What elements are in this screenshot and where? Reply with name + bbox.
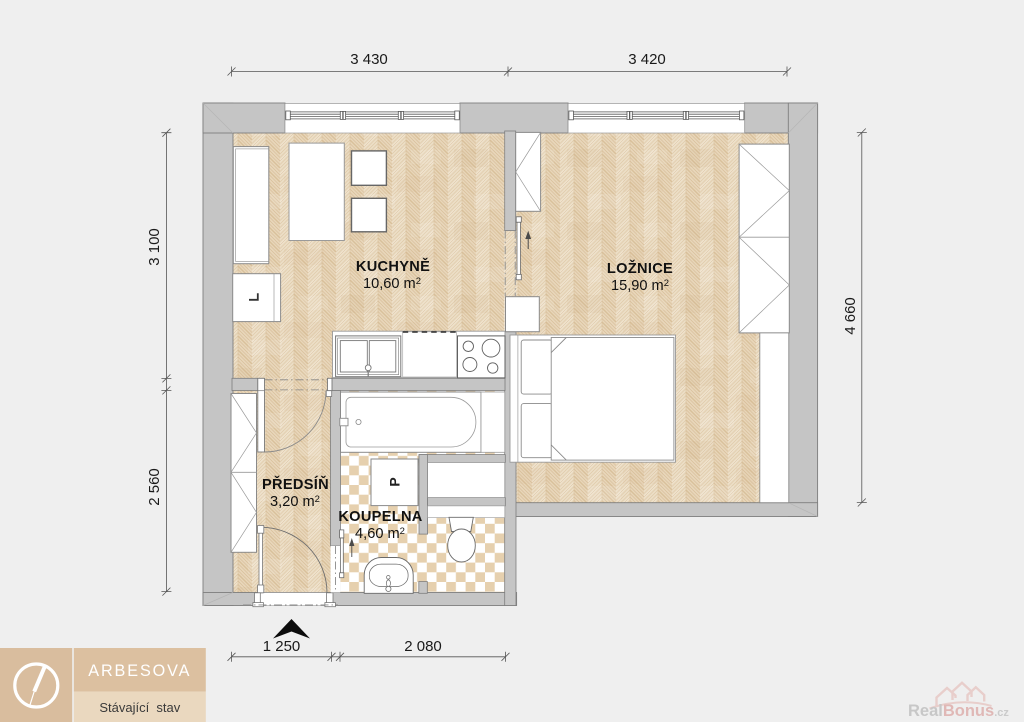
- svg-text:PŘEDSÍŇ: PŘEDSÍŇ: [262, 475, 329, 493]
- svg-text:KOUPELNA: KOUPELNA: [338, 509, 422, 525]
- svg-text:KUCHYNĚ: KUCHYNĚ: [356, 257, 430, 275]
- svg-text:LOŽNICE: LOŽNICE: [607, 259, 673, 277]
- svg-text:ARBESOVA: ARBESOVA: [88, 662, 191, 680]
- svg-text:RealBonus.cz: RealBonus.cz: [908, 702, 1009, 720]
- svg-text:1 250: 1 250: [263, 638, 301, 655]
- svg-text:10,60 m2: 10,60 m2: [363, 276, 421, 292]
- svg-text:3 100: 3 100: [146, 228, 163, 266]
- svg-text:P: P: [387, 477, 403, 486]
- svg-text:2 080: 2 080: [404, 638, 442, 655]
- svg-text:15,90 m2: 15,90 m2: [611, 278, 669, 294]
- svg-text:4,60 m2: 4,60 m2: [355, 526, 405, 542]
- svg-text:3 420: 3 420: [628, 51, 666, 68]
- svg-text:4 660: 4 660: [842, 297, 859, 335]
- svg-text:2 560: 2 560: [146, 468, 163, 506]
- svg-text:3 430: 3 430: [350, 51, 388, 68]
- svg-text:3,20 m2: 3,20 m2: [270, 494, 320, 510]
- svg-text:Stávající stav: Stávající stav: [99, 700, 180, 715]
